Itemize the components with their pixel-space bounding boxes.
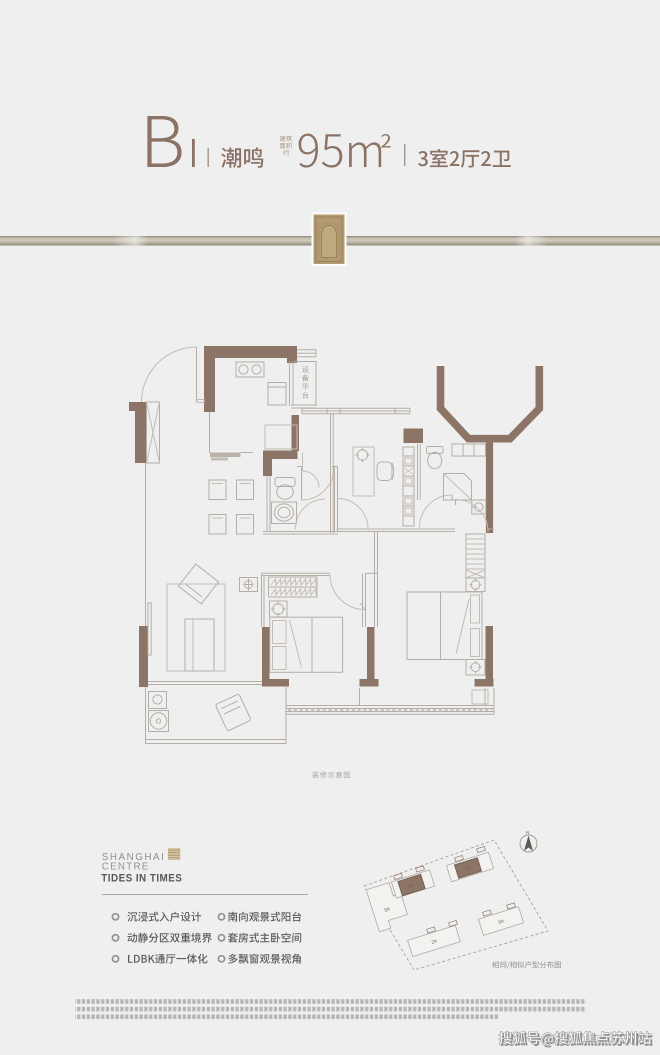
svg-text:N: N (526, 830, 529, 835)
svg-text:CENTRE: CENTRE (102, 861, 150, 872)
svg-text:TIDES IN TIMES: TIDES IN TIMES (101, 873, 182, 885)
